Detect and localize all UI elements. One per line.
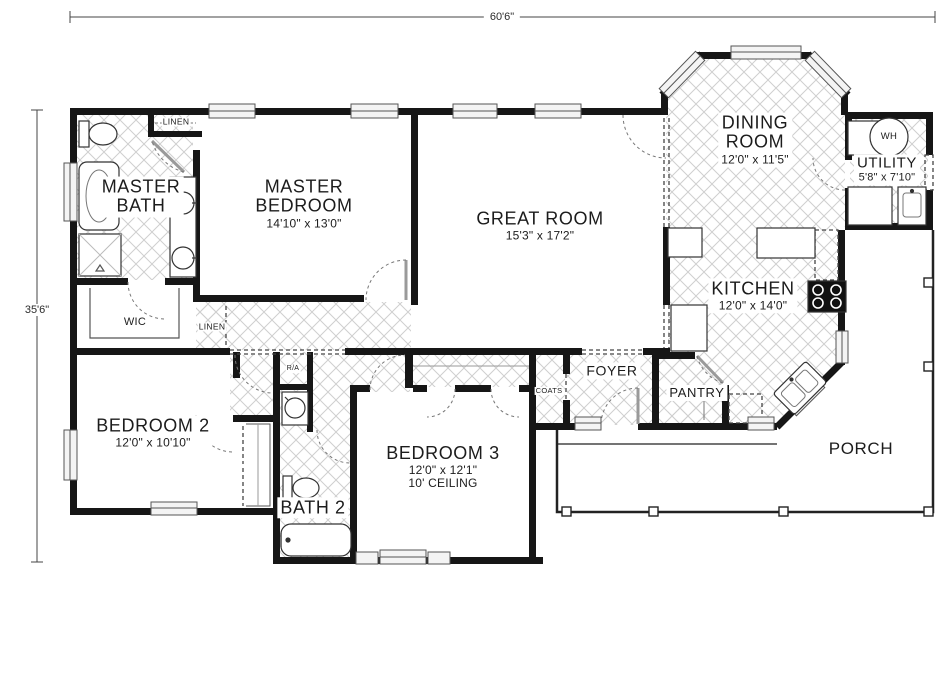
room-label-coats: COATS — [535, 387, 564, 395]
room-label-dining-room: DINING ROOM 12'0" x 11'5" — [718, 113, 792, 168]
toilet-bowl — [293, 478, 319, 498]
room-label-foyer: FOYER — [583, 362, 640, 379]
room-label-porch: PORCH — [826, 439, 896, 459]
toilet-tank — [79, 121, 89, 147]
range — [808, 281, 846, 312]
overall-width-dimension: 60'6" — [484, 11, 520, 23]
counter — [757, 228, 815, 258]
room-label-great-room: GREAT ROOM 15'3" x 17'2" — [473, 208, 606, 243]
washer — [848, 187, 892, 225]
floor-plan: 60'6" 35'6" MASTER BATH MASTER BEDROOM 1… — [0, 0, 950, 674]
sink — [172, 247, 194, 269]
room-label-return-air: R/A — [286, 365, 301, 373]
sink — [285, 398, 305, 418]
room-label-bedroom-2: BEDROOM 2 12'0" x 10'10" — [93, 415, 212, 450]
room-label-wic: WIC — [121, 316, 149, 330]
room-label-linen-hall: LINEN — [198, 322, 227, 331]
toilet-bowl — [89, 123, 117, 145]
refrigerator — [668, 228, 702, 257]
room-label-master-bath: MASTER BATH — [99, 177, 184, 218]
water-heater-label: WH — [881, 132, 897, 142]
tub — [281, 524, 351, 556]
room-label-bedroom-3: BEDROOM 3 12'0" x 12'1" 10' CEILING — [383, 443, 502, 491]
room-label-master-bedroom: MASTER BEDROOM 14'10" x 13'0" — [252, 177, 355, 232]
room-label-pantry: PANTRY — [666, 385, 727, 401]
overall-height-dimension: 35'6" — [19, 304, 55, 316]
room-label-linen-bath: LINEN — [162, 117, 191, 126]
room-label-bath-2: BATH 2 — [277, 497, 348, 518]
cabinet — [671, 305, 707, 351]
floor-plan-drawing — [0, 0, 950, 674]
room-label-kitchen: KITCHEN 12'0" x 14'0" — [708, 278, 797, 313]
room-label-utility: UTILITY 5'8" x 7'10" — [854, 154, 920, 185]
